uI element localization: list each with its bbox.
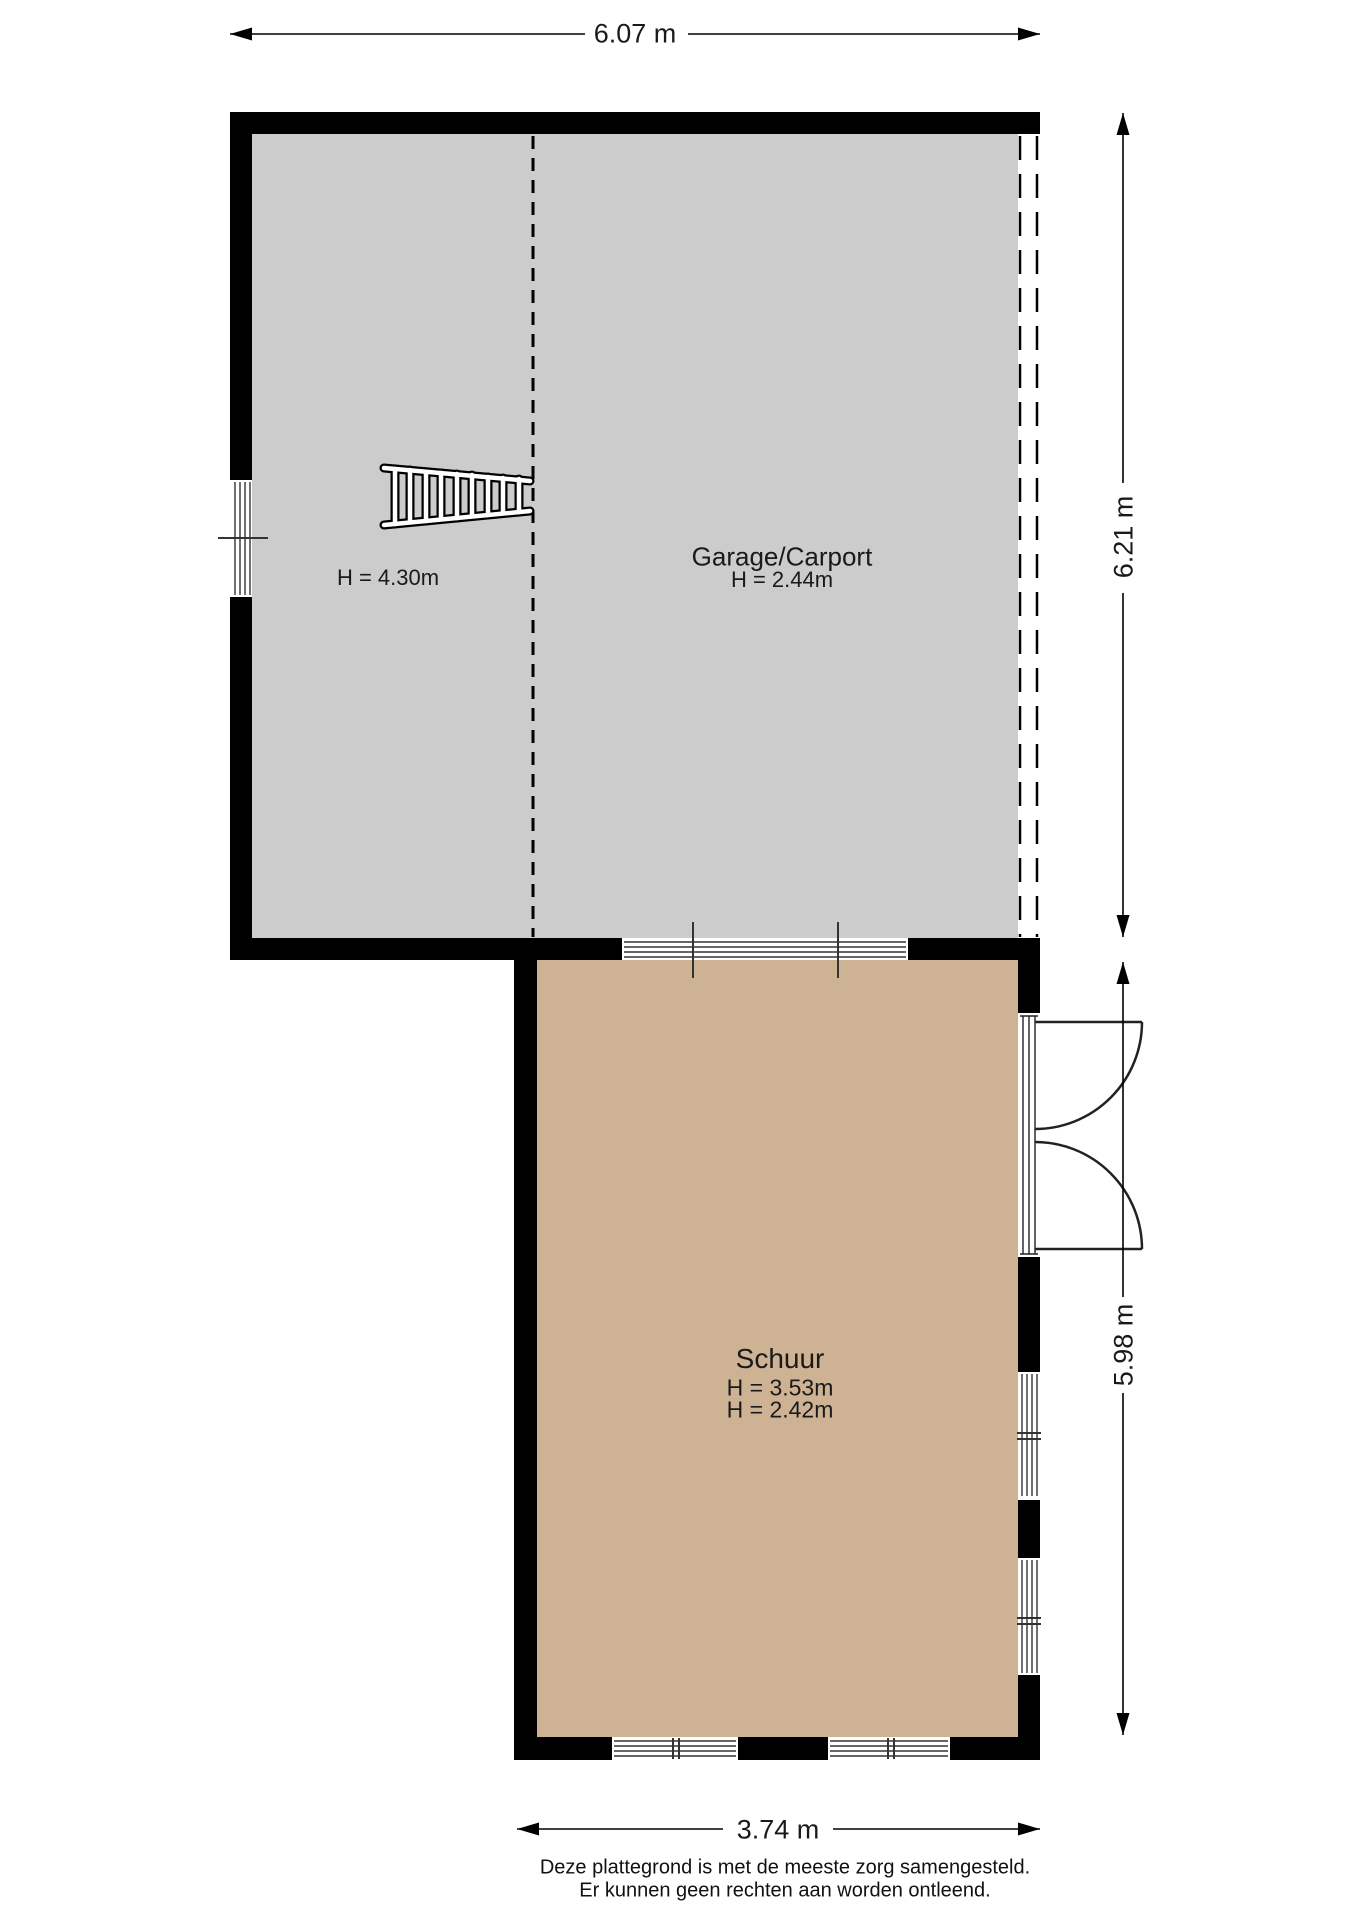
footer-disclaimer-line2: Er kunnen geen rechten aan worden ontlee… — [579, 1880, 990, 1903]
window-bottom-2 — [830, 1738, 948, 1759]
dashed-carport-open-side — [1020, 136, 1037, 937]
dimension-label-right-lower: 5.98 m — [1109, 1304, 1140, 1387]
arrowhead-left-icon — [517, 1823, 539, 1836]
door-swing-arc-top — [1035, 1022, 1142, 1129]
window-junction — [624, 922, 906, 978]
arrowhead-right-icon — [1018, 28, 1040, 41]
arrowhead-right-icon — [1018, 1823, 1040, 1836]
footer-disclaimer-line1: Deze plattegrond is met de meeste zorg s… — [540, 1857, 1030, 1880]
arrowhead-down-icon — [1117, 1713, 1130, 1735]
room-height-schuur-2: H = 2.42m — [727, 1397, 834, 1424]
plan-linework — [0, 0, 1358, 1920]
room-height-garage-carport: H = 2.44m — [731, 567, 833, 593]
arrowhead-up-icon — [1117, 113, 1130, 135]
window-left-wall — [218, 482, 268, 595]
arrowhead-left-icon — [230, 28, 252, 41]
window-right-wall-1 — [1017, 1374, 1041, 1496]
ladder-icon — [384, 468, 530, 525]
floorplan-canvas: 6.07 m 6.21 m 5.98 m 3.74 m Garage/Carpo… — [0, 0, 1358, 1920]
door-swing-arc-bottom — [1035, 1142, 1142, 1249]
dimension-label-bottom: 3.74 m — [737, 1815, 820, 1846]
arrowhead-up-icon — [1117, 962, 1130, 984]
arrowhead-down-icon — [1117, 915, 1130, 937]
window-bottom-1 — [614, 1738, 736, 1759]
dimension-label-top: 6.07 m — [594, 19, 677, 50]
room-height-attic-zone: H = 4.30m — [337, 565, 439, 591]
window-right-wall-2 — [1017, 1560, 1041, 1673]
dimension-label-right-upper: 6.21 m — [1109, 496, 1140, 579]
room-label-schuur: Schuur — [736, 1343, 825, 1375]
